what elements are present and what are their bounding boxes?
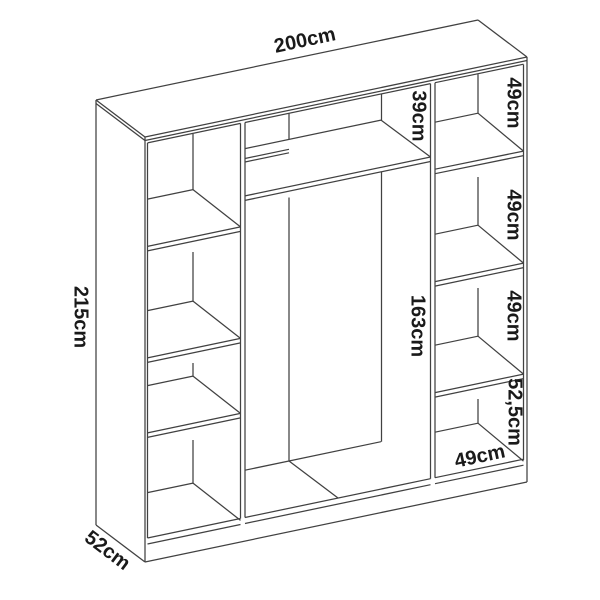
dimension-label-right-bottom: 52,5cm (503, 378, 526, 446)
divider-right (431, 83, 436, 479)
divider-left (241, 123, 246, 519)
opening-top-edge (148, 64, 524, 143)
base-floor (148, 459, 524, 544)
center-compartment (245, 172, 382, 498)
dimension-label-right-shelf-3: 49cm (502, 290, 525, 341)
outer-frame (96, 20, 527, 562)
dimension-label-middle-height: 163cm (406, 295, 429, 357)
left-column-shelves (148, 134, 241, 521)
dimension-label-top-shelf-height: 39cm (407, 90, 430, 141)
dimension-label-right-shelf-2: 49cm (502, 189, 525, 240)
dimension-label-right-shelf-1: 49cm (502, 77, 525, 128)
wardrobe-dimension-diagram: 200cm 215cm 52cm 39cm 163cm 49cm 49cm 49… (0, 0, 600, 600)
dimension-label-overall-height: 215cm (69, 286, 92, 348)
